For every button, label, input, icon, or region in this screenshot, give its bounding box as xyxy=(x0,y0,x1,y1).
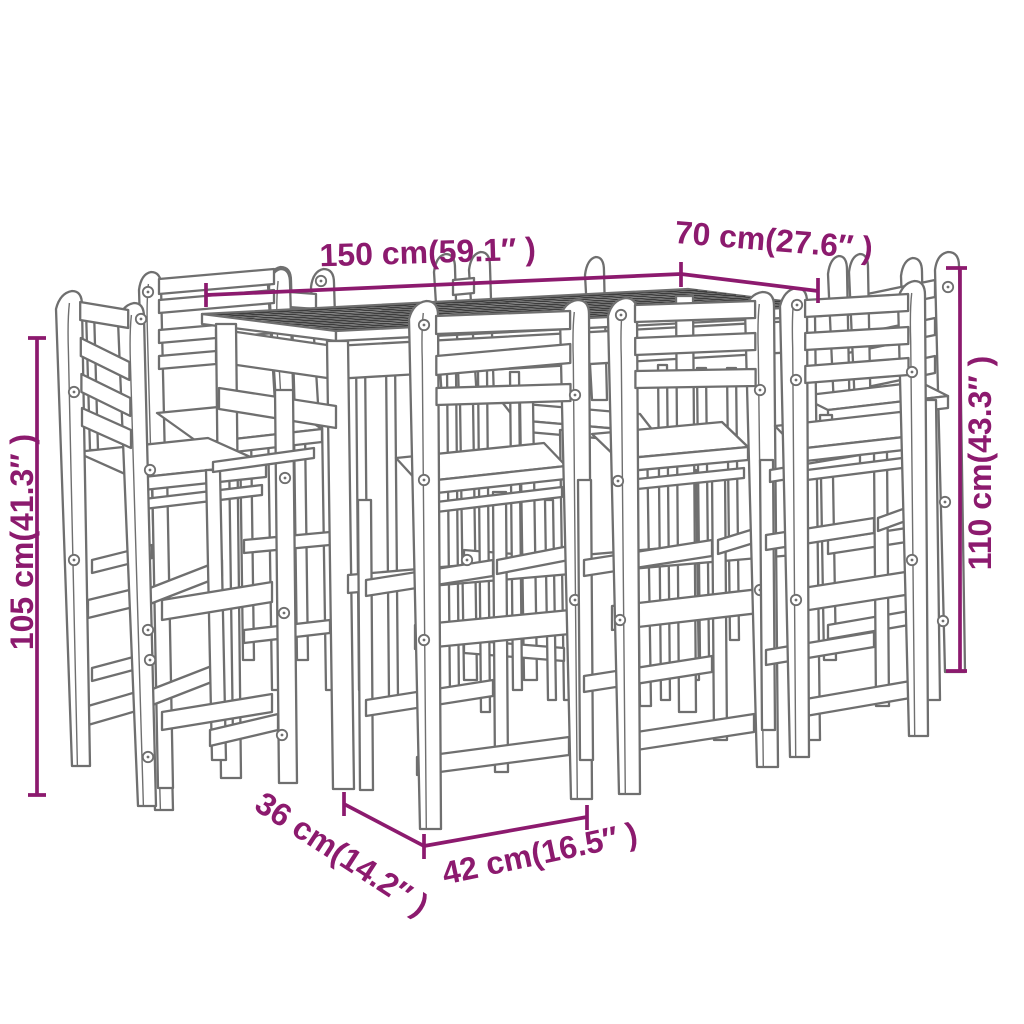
svg-text:105 cm(41.3″ ): 105 cm(41.3″ ) xyxy=(4,434,40,650)
svg-text:150 cm(59.1″ ): 150 cm(59.1″ ) xyxy=(319,231,536,274)
svg-text:70 cm(27.6″ ): 70 cm(27.6″ ) xyxy=(673,214,874,266)
svg-text:110 cm(43.3″ ): 110 cm(43.3″ ) xyxy=(962,356,998,571)
svg-text:36 cm(14.2″ ): 36 cm(14.2″ ) xyxy=(249,785,435,923)
